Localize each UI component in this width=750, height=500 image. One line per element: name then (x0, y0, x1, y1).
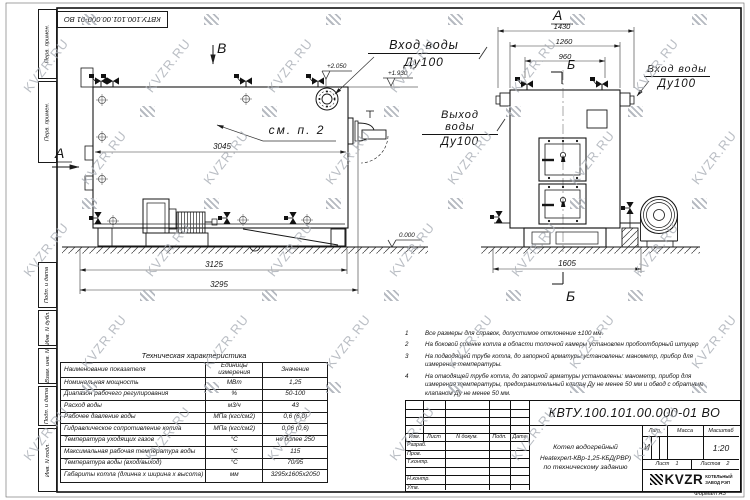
grid-line (651, 436, 652, 459)
param-unit: °С (206, 459, 264, 471)
dim-960: 960 (545, 52, 585, 61)
tech-table-title: Техническая характеристика (60, 351, 328, 362)
param-name: Гидравлическое сопротивление котла (61, 424, 206, 436)
row-utv: Утв. (407, 484, 445, 493)
margin-field-label: Инв. N дубл. (45, 311, 51, 345)
table-row: Максимальная рабочая температура воды °С… (61, 447, 327, 459)
param-value: 1,25 (263, 378, 327, 390)
row-tkontr: Т.контр. (407, 458, 445, 467)
param-name: Габариты котла (длинна х ширина х высота… (61, 470, 206, 482)
table-row: Диапазон рабочего регулирования % 50-100 (61, 390, 327, 402)
name-line-3: по техническому заданию (544, 463, 628, 474)
grid-line (445, 401, 446, 490)
section-letter-b-top: Б (567, 58, 575, 72)
name-line-2: Heatexpert-КВр-1,25-КБД(РВР) (540, 454, 631, 464)
name-line-1: Котел водогрейный (553, 443, 618, 454)
top-doc-number-box: КВТУ.100.101.00.000-01 ВО (57, 11, 168, 28)
param-name: Номинальная мощность (61, 378, 206, 390)
note-number: 2 (405, 341, 425, 350)
param-unit: °С (206, 436, 264, 448)
title-block-name: Котел водогрейный Heatexpert-КВр-1,25-КБ… (529, 426, 643, 491)
col-header-data: Дата (510, 433, 529, 441)
dim-1605: 1605 (539, 259, 595, 268)
margin-field-label: Взам. инв. N (45, 349, 51, 383)
title-block-right: Лит. Масса Масштаб И 1:20 Лист 1 Листов … (643, 426, 739, 490)
margin-field-podp-data-1: Подп. и дата (38, 262, 57, 308)
table-row: Номинальная мощность МВт 1,25 (61, 378, 327, 390)
elevation-zero: 0.000 (399, 232, 415, 239)
param-unit: м3/ч (206, 401, 264, 413)
margin-field-label: Инв. N подл. (45, 443, 51, 477)
logo-sub-line2: ЗАВОД РЭП (705, 480, 732, 485)
elevation-plus1930: +1.930 (388, 70, 407, 77)
margin-field-inv-dubl: Инв. N дубл. (38, 310, 57, 346)
note-number: 1 (405, 330, 425, 339)
kvzr-logo-icon (650, 474, 663, 485)
mass-header: Масса (667, 426, 703, 436)
param-name: Максимальная рабочая температура воды (61, 447, 206, 459)
param-unit: мм (206, 470, 264, 482)
row-razrab: Разраб. (407, 441, 445, 450)
grid-line (489, 401, 490, 490)
param-value: не более 250 (263, 436, 327, 448)
tech-table-grid: Наименование показателя Единицы измерени… (60, 362, 328, 483)
param-name: Диапазон рабочего регулирования (61, 390, 206, 402)
param-value: 50-100 (263, 390, 327, 402)
view-letter-b: В (217, 40, 226, 56)
dim-3295: 3295 (192, 280, 246, 289)
table-row: Гидравлическое сопротивление котла МПа (… (61, 424, 327, 436)
param-name: Рабочее давление воды (61, 413, 206, 425)
side-view-linework (62, 68, 428, 254)
dim-3125: 3125 (187, 260, 241, 269)
margin-field-inv-podl: Инв. N подл. (38, 428, 57, 492)
logo-sub-line1: КОТЕЛЬНЫЙ (705, 474, 732, 479)
sheet-cell: Лист 1 (643, 459, 691, 469)
lit-header: Лит. (643, 426, 667, 436)
kvzr-logo-subtext: КОТЕЛЬНЫЙ ЗАВОД РЭП (705, 474, 732, 485)
row-nkontr: Н.контр. (407, 475, 445, 484)
tech-table-header: Единицы измерения (206, 363, 264, 378)
section-letter-b-bottom: Б (566, 288, 575, 304)
table-row: Расход воды м3/ч 43 (61, 401, 327, 413)
elevation-plus2050: +2.050 (327, 63, 346, 70)
tech-table-header: Значение (263, 363, 327, 378)
tech-table-header-row: Наименование показателя Единицы измерени… (61, 363, 327, 378)
inlet-water-dn: Ду100 (368, 54, 480, 69)
sheets-cell: Листов 2 (691, 459, 739, 469)
param-name: Расход воды (61, 401, 206, 413)
title-block: Изм. Лист N докум. Подп. Дата Разраб. Пр… (405, 400, 741, 492)
margin-field-podp-data-2: Подп. и дата (38, 386, 57, 426)
note-item: 1 Все размеры для справок, допустимое от… (405, 330, 717, 339)
margin-field-label: Подп. и дата (45, 388, 51, 424)
inlet-water-dn: Ду100 (644, 77, 710, 90)
tech-characteristics-table: Техническая характеристика Наименование … (60, 351, 328, 483)
param-unit: МПа (кгс/см2) (206, 413, 264, 425)
view-letter-a: А (553, 7, 562, 23)
note-number: 3 (405, 353, 425, 371)
param-unit: % (206, 390, 264, 402)
col-header-podp: Подп. (489, 433, 510, 441)
note-text: Все размеры для справок, допустимое откл… (425, 330, 717, 339)
table-row: Температура уходящих газов °С не более 2… (61, 436, 327, 448)
outlet-water-text: Выход воды (422, 109, 498, 135)
inlet-water-label-side: Вход воды Ду100 (368, 38, 480, 69)
param-value: 3295х1605х2050 (263, 470, 327, 482)
note-item: 2 На боковой стенке котла в области топо… (405, 341, 717, 350)
param-name: Температура воды (вход/выход) (61, 459, 206, 471)
param-value: 0,6 (6,0) (263, 413, 327, 425)
top-doc-number: КВТУ.100.101.00.000-01 ВО (64, 15, 161, 24)
note-text: На боковой стенке котла в области топочн… (425, 341, 717, 350)
note-text: На отводящей трубе котла, до запорной ар… (425, 373, 717, 399)
logo-cell: KVZR КОТЕЛЬНЫЙ ЗАВОД РЭП (643, 469, 739, 490)
side-view-dimensions (52, 45, 505, 294)
kvzr-logo-text: KVZR (665, 472, 704, 487)
table-row: Температура воды (вход/выход) °С 70/95 (61, 459, 327, 471)
tech-table-header: Наименование показателя (61, 363, 206, 378)
margin-field-label: Перв. примен. (45, 25, 51, 64)
margin-field-vzam-inv: Взам. инв. N (38, 348, 57, 384)
table-row: Рабочее давление воды МПа (кгс/см2) 0,6 … (61, 413, 327, 425)
note-number: 4 (405, 373, 425, 399)
param-value: 0,06 (0,6) (263, 424, 327, 436)
sheet-label: Лист (656, 461, 670, 467)
see-note-label: см. п. 2 (258, 123, 336, 137)
dim-1260: 1260 (542, 37, 586, 46)
drawing-sheet: Перв. примен. Перв. примен. Подп. и дата… (0, 0, 750, 500)
outlet-water-dn: Ду100 (422, 135, 498, 148)
margin-field-label: Подп. и дата (45, 267, 51, 303)
col-header-izm: Изм. (406, 433, 423, 441)
param-unit: °С (206, 447, 264, 459)
table-row: Габариты котла (длинна х ширина х высота… (61, 470, 327, 482)
col-header-list: Лист (423, 433, 445, 441)
notes-list: 1 Все размеры для справок, допустимое от… (405, 330, 717, 402)
grid-line (510, 401, 511, 490)
sheet-value: 1 (675, 461, 678, 467)
scale-value: 1:20 (703, 436, 739, 459)
title-block-doc-number: КВТУ.100.101.00.000-01 ВО (529, 401, 740, 426)
param-unit: МВт (206, 378, 264, 390)
scale-header: Масштаб (703, 426, 739, 436)
inlet-water-label-front: Вход воды Ду100 (644, 63, 710, 90)
param-name: Температура уходящих газов (61, 436, 206, 448)
col-header-doc: N докум. (445, 433, 489, 441)
sheets-label: Листов (701, 461, 721, 467)
param-value: 115 (263, 447, 327, 459)
kvzr-logo: KVZR КОТЕЛЬНЫЙ ЗАВОД РЭП (650, 472, 733, 487)
row-prov: Пров. (407, 450, 445, 459)
section-letter-a: А (55, 145, 64, 161)
note-item: 4 На отводящей трубе котла, до запорной … (405, 373, 717, 399)
format-label: Формат А3 (668, 491, 750, 497)
inlet-water-text: Вход воды (368, 38, 480, 54)
param-unit: МПа (кгс/см2) (206, 424, 264, 436)
inlet-water-text: Вход воды (644, 63, 710, 77)
margin-field-perv-primen-1: Перв. примен. (38, 9, 57, 79)
front-view-linework (481, 70, 700, 254)
dim-3045: 3045 (200, 142, 244, 151)
margin-field-label: Перв. примен. (45, 103, 51, 142)
sheets-value: 2 (726, 461, 729, 467)
note-text: На подводящей трубе котла, до запорной а… (425, 353, 717, 371)
param-value: 43 (263, 401, 327, 413)
param-value: 70/95 (263, 459, 327, 471)
lit-value: И (643, 436, 651, 459)
grid-line (659, 436, 660, 459)
outlet-water-label: Выход воды Ду100 (422, 109, 498, 148)
dim-1430: 1430 (540, 22, 584, 31)
note-item: 3 На подводящей трубе котла, до запорной… (405, 353, 717, 371)
